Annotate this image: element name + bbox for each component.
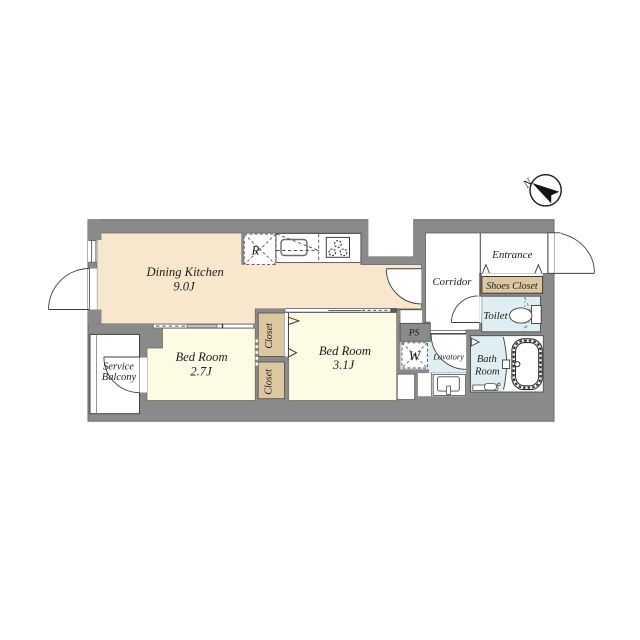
svg-text:Room: Room <box>474 367 500 378</box>
svg-text:Corridor: Corridor <box>432 276 472 288</box>
svg-text:PS: PS <box>408 329 420 339</box>
svg-text:Entrance: Entrance <box>491 249 532 261</box>
svg-text:Bath: Bath <box>477 354 497 365</box>
svg-text:9.0J: 9.0J <box>173 280 196 294</box>
svg-text:Service: Service <box>103 361 134 372</box>
svg-text:Shoes Closet: Shoes Closet <box>486 281 538 292</box>
svg-text:Closet: Closet <box>264 323 275 349</box>
svg-text:Closet: Closet <box>263 369 274 395</box>
svg-text:Lavatory: Lavatory <box>432 351 464 361</box>
svg-text:Balcony: Balcony <box>102 372 137 383</box>
svg-text:2.7J: 2.7J <box>190 364 213 378</box>
svg-text:Bed Room: Bed Room <box>319 344 371 358</box>
svg-text:W: W <box>409 350 422 365</box>
svg-text:R: R <box>251 244 260 258</box>
svg-text:Toilet: Toilet <box>483 310 508 322</box>
svg-text:Bed Room: Bed Room <box>175 350 227 364</box>
svg-text:3.1J: 3.1J <box>332 358 356 372</box>
svg-text:Dining Kitchen: Dining Kitchen <box>146 265 224 279</box>
